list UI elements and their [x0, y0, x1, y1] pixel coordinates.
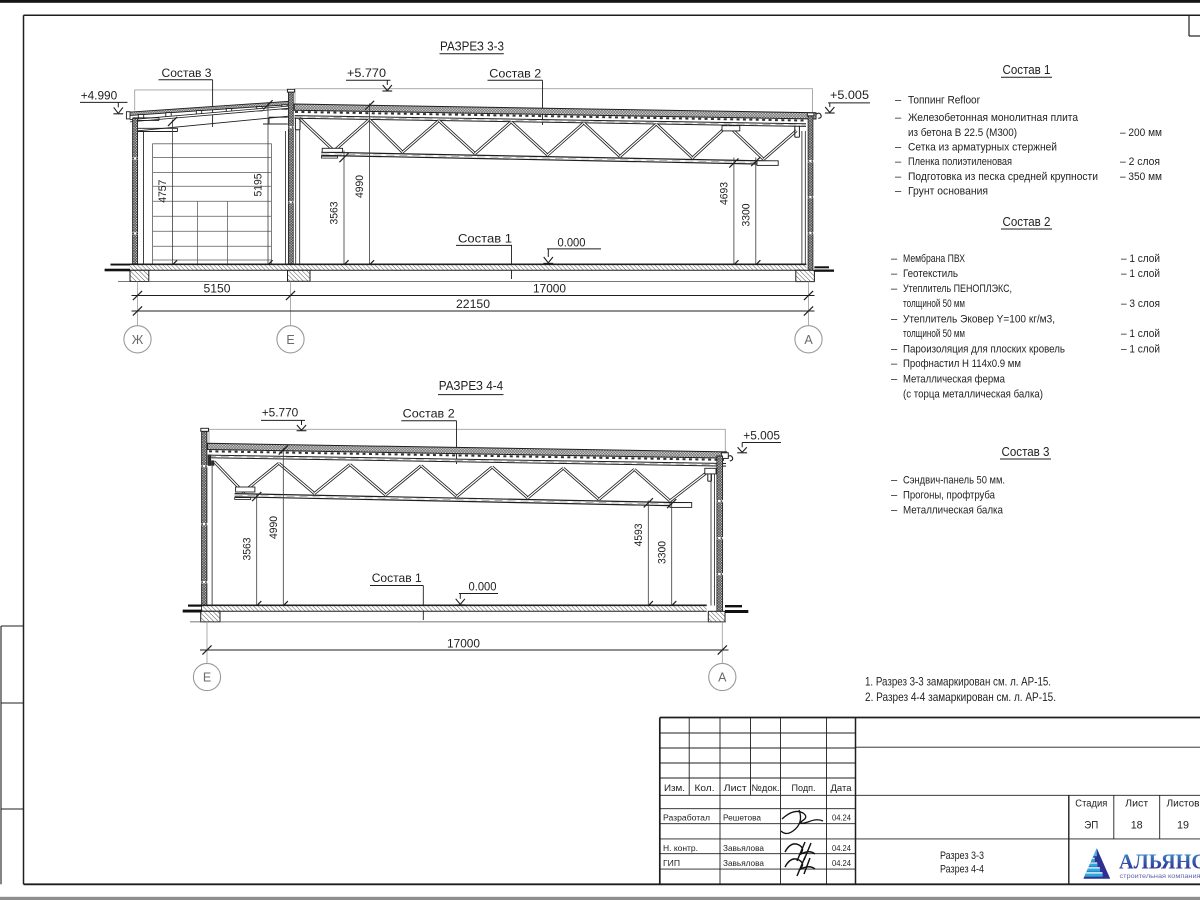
svg-text:–: –	[895, 156, 902, 168]
svg-text:–: –	[891, 268, 898, 280]
svg-text:3563: 3563	[241, 538, 253, 561]
svg-text:19: 19	[1177, 820, 1189, 832]
svg-text:Утеплитель Эковер Y=100 кг/м3,: Утеплитель Эковер Y=100 кг/м3,	[903, 313, 1055, 325]
svg-text:–: –	[891, 283, 898, 295]
svg-text:0.000: 0.000	[469, 580, 497, 594]
svg-text:1. Разрез 3-3 замаркирован см.: 1. Разрез 3-3 замаркирован см. л. АР-15.	[865, 675, 1051, 689]
svg-text:Мембрана ПВХ: Мембрана ПВХ	[903, 253, 965, 265]
svg-text:Листов: Листов	[1167, 798, 1200, 809]
svg-text:– 3 слоя: – 3 слоя	[1121, 298, 1160, 310]
svg-text:–: –	[891, 505, 898, 517]
svg-text:5150: 5150	[204, 282, 231, 296]
svg-text:04.24: 04.24	[832, 843, 851, 853]
svg-text:18: 18	[1131, 820, 1143, 832]
svg-text:Состав 2: Состав 2	[489, 66, 541, 80]
svg-text:Пленка полиэтиленовая: Пленка полиэтиленовая	[908, 156, 1012, 168]
svg-text:Металлическая балка: Металлическая балка	[903, 505, 1004, 517]
svg-text:– 1 слой: – 1 слой	[1121, 328, 1160, 340]
svg-text:4757: 4757	[157, 180, 169, 203]
svg-text:Состав 3: Состав 3	[162, 66, 212, 80]
svg-text:А: А	[804, 333, 813, 347]
svg-text:– 1 слой: – 1 слой	[1121, 253, 1160, 265]
svg-text:– 350 мм: – 350 мм	[1120, 171, 1162, 183]
svg-text:Состав 2: Состав 2	[1003, 215, 1051, 229]
svg-text:04.24: 04.24	[832, 813, 851, 823]
svg-text:22150: 22150	[456, 297, 490, 311]
svg-text:Сетка из арматурных стержней: Сетка из арматурных стержней	[908, 142, 1057, 154]
svg-text:Решетова: Решетова	[723, 813, 761, 823]
svg-text:Лист: Лист	[1125, 798, 1149, 809]
svg-text:3563: 3563	[329, 202, 341, 225]
svg-text:Ж: Ж	[132, 333, 144, 347]
svg-text:Состав 3: Состав 3	[1002, 445, 1050, 459]
svg-text:Разработал: Разработал	[663, 813, 710, 823]
svg-text:РАЗРЕЗ 3-3: РАЗРЕЗ 3-3	[440, 39, 504, 54]
svg-text:Стадия: Стадия	[1075, 798, 1107, 809]
svg-text:Железобетонная монолитная пли: Железобетонная монолитная плита	[908, 112, 1079, 124]
svg-text:17000: 17000	[447, 636, 480, 650]
svg-text:Топпинг Refloor: Топпинг Refloor	[908, 95, 980, 107]
svg-text:Завьялова: Завьялова	[723, 843, 764, 853]
svg-text:– 1 слой: – 1 слой	[1121, 343, 1160, 355]
svg-text:–: –	[891, 373, 898, 385]
svg-text:–: –	[891, 358, 898, 370]
svg-text:толщиной 50 мм: толщиной 50 мм	[903, 328, 965, 340]
svg-text:Утеплитель ПЕНОПЛЭКС,: Утеплитель ПЕНОПЛЭКС,	[903, 283, 1012, 295]
svg-text:Кол.: Кол.	[695, 782, 715, 793]
svg-text:Изм.: Изм.	[664, 782, 685, 793]
svg-text:Е: Е	[203, 671, 211, 685]
svg-text:Дата: Дата	[831, 782, 853, 793]
svg-text:Н. контр.: Н. контр.	[663, 843, 698, 853]
svg-text:ГИП: ГИП	[663, 858, 680, 868]
svg-text:–: –	[895, 171, 902, 183]
svg-text:–: –	[891, 343, 898, 355]
svg-text:–: –	[891, 253, 898, 265]
svg-text:+5.005: +5.005	[830, 88, 869, 102]
svg-text:Металлическая ферма: Металлическая ферма	[903, 373, 1006, 385]
svg-text:– 1 слой: – 1 слой	[1121, 268, 1160, 280]
svg-text:– 2 слоя: – 2 слоя	[1120, 156, 1160, 168]
svg-text:из бетона В 22.5 (М300): из бетона В 22.5 (М300)	[908, 127, 1017, 139]
svg-text:Разрез 4-4: Разрез 4-4	[940, 863, 984, 875]
svg-text:3300: 3300	[740, 204, 752, 227]
svg-text:+5.005: +5.005	[743, 429, 780, 443]
svg-text:5195: 5195	[253, 174, 265, 197]
svg-text:0.000: 0.000	[558, 236, 586, 250]
svg-text:Грунт основания: Грунт основания	[908, 186, 988, 198]
svg-text:АЛЬЯНС: АЛЬЯНС	[1119, 850, 1200, 874]
svg-text:Подготовка из песка средней кр: Подготовка из песка средней крупности	[908, 171, 1098, 183]
svg-text:Е: Е	[286, 333, 294, 347]
svg-text:№док.: №док.	[752, 782, 780, 793]
svg-text:4593: 4593	[633, 524, 645, 547]
svg-text:Состав 1: Состав 1	[372, 571, 422, 585]
svg-text:Прогоны, профтруба: Прогоны, профтруба	[903, 490, 996, 502]
svg-text:Пароизоляция для плоских крове: Пароизоляция для плоских кровель	[903, 343, 1065, 355]
svg-text:Геотекстиль: Геотекстиль	[903, 268, 958, 280]
svg-text:+4.990: +4.990	[81, 89, 118, 103]
svg-text:4990: 4990	[354, 175, 366, 198]
svg-text:Состав 2: Состав 2	[403, 407, 455, 421]
svg-text:РАЗРЕЗ 4-4: РАЗРЕЗ 4-4	[439, 378, 504, 393]
svg-text:04.24: 04.24	[832, 858, 851, 868]
svg-text:Лист: Лист	[724, 782, 748, 793]
svg-text:+5.770: +5.770	[347, 66, 386, 80]
svg-text:2. Разрез 4-4 замаркирован см.: 2. Разрез 4-4 замаркирован см. л. АР-15.	[865, 690, 1056, 704]
svg-text:Состав 1: Состав 1	[1003, 63, 1051, 77]
svg-text:строительная компания: строительная компания	[1120, 873, 1200, 880]
svg-text:Подп.: Подп.	[792, 782, 816, 793]
svg-text:(с торца металлическая балка): (с торца металлическая балка)	[903, 388, 1043, 400]
svg-text:Профнастил Н 114х0.9 мм: Профнастил Н 114х0.9 мм	[903, 358, 1021, 370]
svg-text:А: А	[718, 671, 727, 685]
svg-text:17000: 17000	[533, 282, 566, 296]
svg-text:–: –	[895, 186, 902, 198]
svg-text:Сэндвич-панель 50 мм.: Сэндвич-панель 50 мм.	[903, 475, 1005, 487]
svg-text:Завьялова: Завьялова	[723, 858, 764, 868]
svg-text:–: –	[895, 95, 902, 107]
svg-text:толщиной 50 мм: толщиной 50 мм	[903, 298, 965, 310]
svg-text:4693: 4693	[719, 182, 731, 205]
svg-text:3300: 3300	[656, 541, 668, 564]
svg-text:4990: 4990	[268, 516, 280, 539]
svg-text:–: –	[895, 142, 902, 154]
svg-text:ЭП: ЭП	[1084, 820, 1098, 832]
svg-text:–: –	[891, 490, 898, 502]
svg-text:Состав 1: Состав 1	[458, 232, 512, 246]
svg-text:–: –	[891, 313, 898, 325]
svg-text:+5.770: +5.770	[262, 406, 299, 420]
svg-text:–: –	[891, 475, 898, 487]
svg-text:–: –	[895, 112, 902, 124]
svg-text:Разрез 3-3: Разрез 3-3	[940, 850, 984, 862]
svg-text:– 200 мм: – 200 мм	[1120, 127, 1162, 139]
